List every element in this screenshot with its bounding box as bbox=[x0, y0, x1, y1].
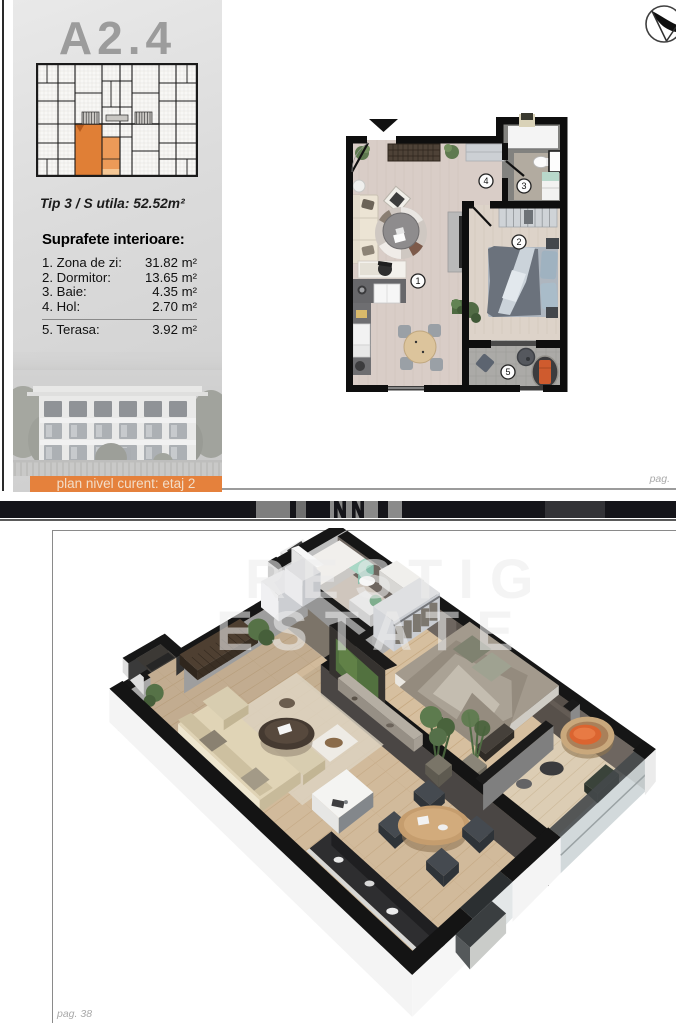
svg-text:5: 5 bbox=[505, 367, 510, 377]
svg-text:4: 4 bbox=[483, 176, 488, 186]
svg-text:3: 3 bbox=[521, 181, 526, 191]
svg-text:2: 2 bbox=[516, 237, 521, 247]
svg-text:ESTATE: ESTATE bbox=[216, 599, 531, 662]
svg-text:1: 1 bbox=[415, 276, 420, 286]
